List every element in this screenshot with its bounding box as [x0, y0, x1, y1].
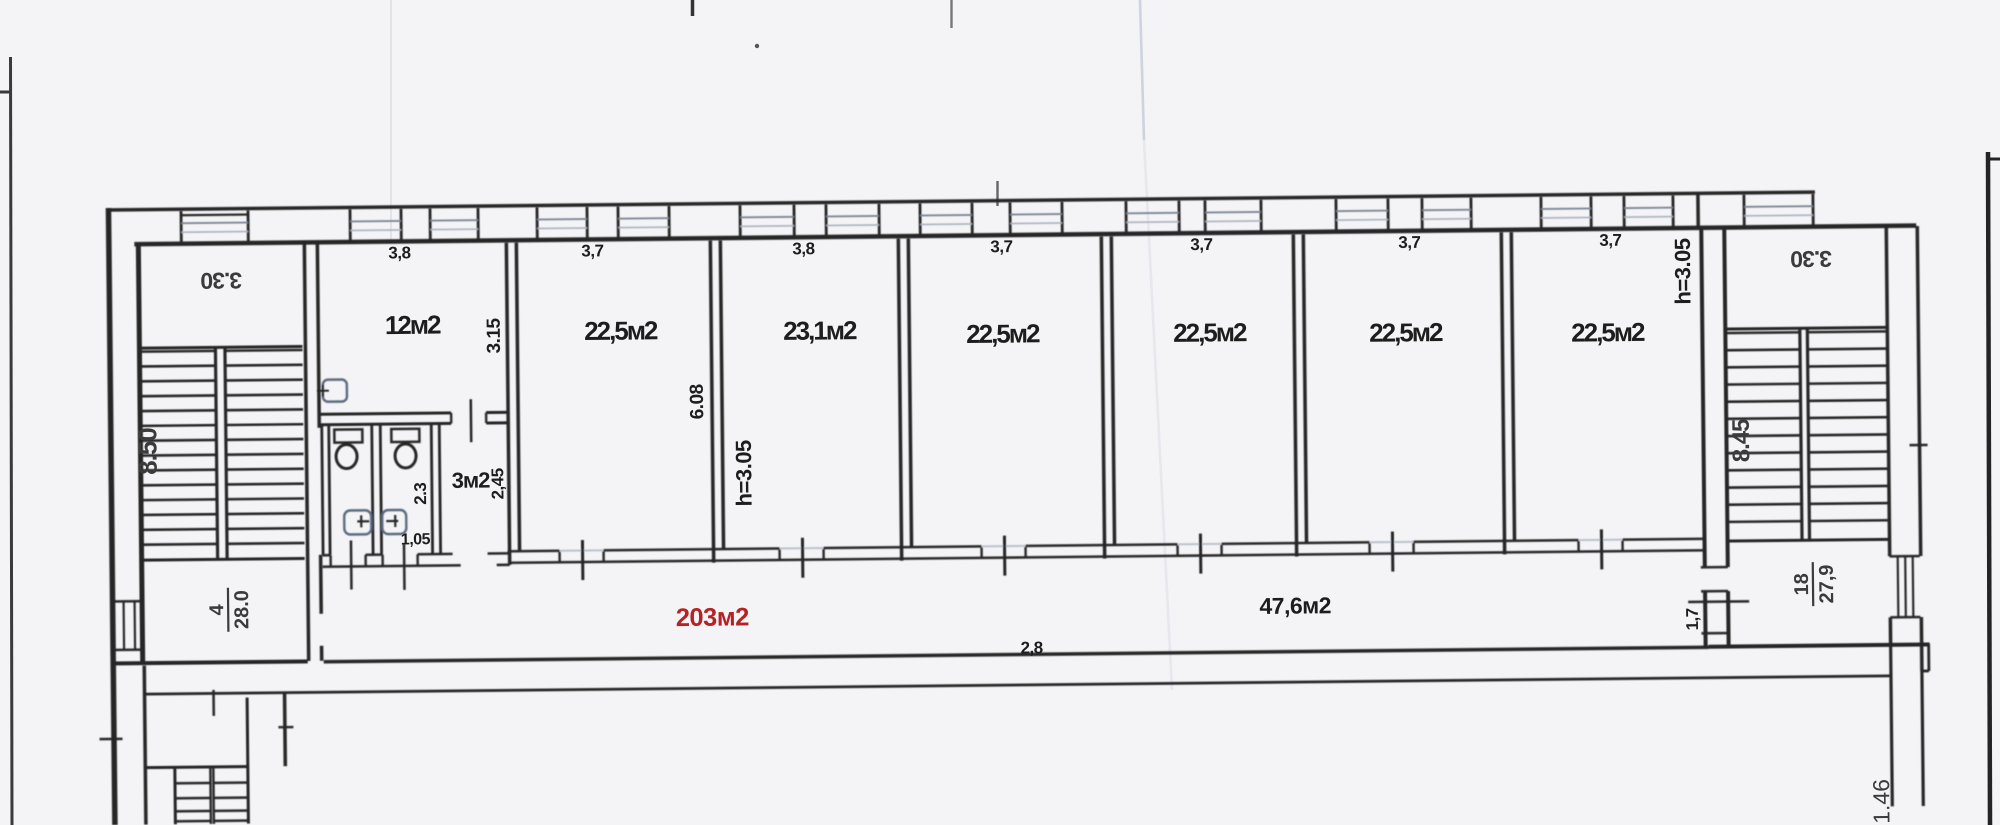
svg-text:203м2: 203м2 — [676, 603, 750, 632]
svg-text:3,7: 3,7 — [581, 241, 603, 260]
svg-text:47,6м2: 47,6м2 — [1259, 592, 1331, 619]
svg-text:28.0: 28.0 — [231, 590, 253, 629]
svg-text:22,5м2: 22,5м2 — [1173, 317, 1247, 348]
svg-text:22,5м2: 22,5м2 — [1369, 317, 1443, 348]
svg-text:22,5м2: 22,5м2 — [584, 315, 658, 346]
svg-text:23,1м2: 23,1м2 — [783, 315, 857, 346]
svg-text:3.30: 3.30 — [1791, 246, 1832, 272]
svg-text:1,7: 1,7 — [1683, 608, 1702, 630]
svg-text:2,45: 2,45 — [488, 468, 507, 499]
svg-text:3,7: 3,7 — [990, 237, 1012, 256]
svg-text:1.46: 1.46 — [1868, 779, 1894, 824]
svg-text:4: 4 — [206, 603, 228, 615]
svg-text:h=3.05: h=3.05 — [731, 440, 757, 507]
svg-text:3,7: 3,7 — [1599, 231, 1621, 250]
svg-text:2.3: 2.3 — [411, 483, 430, 505]
svg-text:22,5м2: 22,5м2 — [966, 318, 1040, 349]
svg-text:3м2: 3м2 — [452, 468, 491, 493]
svg-text:3,8: 3,8 — [792, 239, 814, 258]
svg-text:2,8: 2,8 — [1020, 638, 1042, 657]
svg-text:22,5м2: 22,5м2 — [1571, 317, 1645, 348]
svg-text:3.30: 3.30 — [201, 268, 242, 294]
svg-text:18: 18 — [1791, 573, 1813, 595]
svg-text:27,9: 27,9 — [1816, 564, 1838, 603]
svg-text:8.45: 8.45 — [1728, 419, 1755, 463]
svg-text:1,05: 1,05 — [401, 531, 431, 548]
svg-text:3,7: 3,7 — [1398, 233, 1420, 252]
svg-text:3,7: 3,7 — [1190, 235, 1212, 254]
svg-text:3.15: 3.15 — [484, 317, 505, 353]
svg-text:3,8: 3,8 — [388, 243, 410, 262]
svg-text:12м2: 12м2 — [385, 310, 441, 341]
svg-text:6.08: 6.08 — [687, 384, 708, 419]
svg-text:h=3.05: h=3.05 — [1670, 238, 1696, 305]
svg-text:8.50: 8.50 — [132, 428, 162, 475]
